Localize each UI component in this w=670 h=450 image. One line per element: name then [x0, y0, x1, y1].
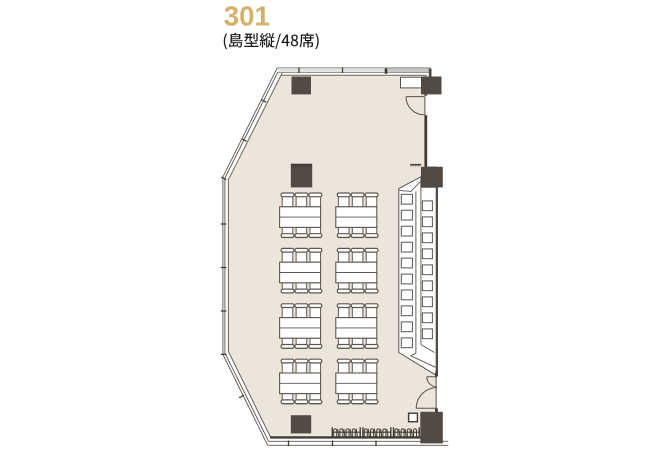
svg-text:301: 301 [224, 1, 270, 32]
